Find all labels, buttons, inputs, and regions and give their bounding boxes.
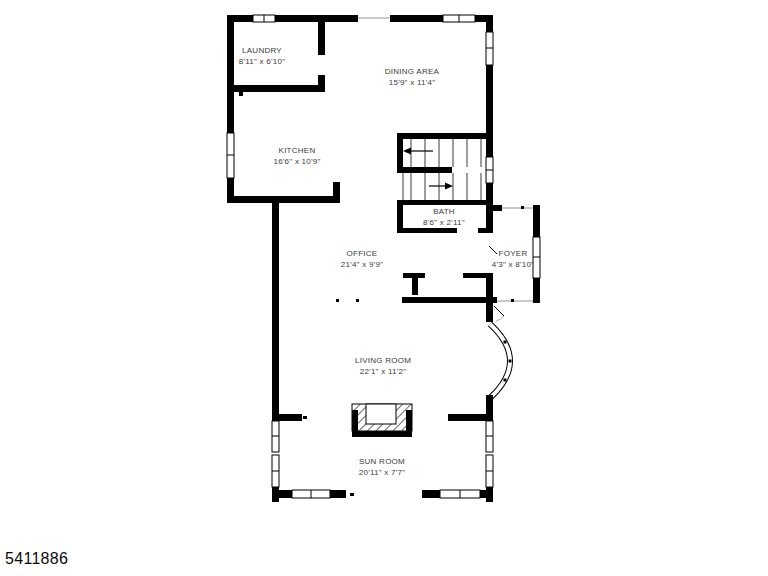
room-name: FOYER bbox=[492, 248, 534, 259]
room-dims: 4'3" x 8'10" bbox=[492, 259, 534, 270]
room-label-kitchen: KITCHEN 16'6" x 10'9" bbox=[273, 145, 320, 167]
room-label-living-room: LIVING ROOM 22'1" x 11'2" bbox=[355, 355, 411, 377]
room-label-office: OFFICE 21'4" x 9'9" bbox=[341, 248, 383, 270]
room-name: SUN ROOM bbox=[359, 456, 406, 467]
room-label-laundry: LAUNDRY 8'11" x 6'10" bbox=[239, 45, 286, 67]
room-dims: 22'1" x 11'2" bbox=[355, 366, 411, 377]
fireplace bbox=[352, 404, 412, 437]
floorplan-image: LAUNDRY 8'11" x 6'10" DINING AREA 15'9" … bbox=[0, 0, 768, 576]
room-label-foyer: FOYER 4'3" x 8'10" bbox=[492, 248, 534, 270]
room-label-sun-room: SUN ROOM 20'11" x 7'7" bbox=[359, 456, 406, 478]
room-name: DINING AREA bbox=[385, 66, 439, 77]
room-name: LIVING ROOM bbox=[355, 355, 411, 366]
room-dims: 15'9" x 11'4" bbox=[385, 77, 439, 88]
room-name: LAUNDRY bbox=[239, 45, 286, 56]
listing-number: 5411886 bbox=[5, 550, 68, 568]
room-dims: 21'4" x 9'9" bbox=[341, 259, 383, 270]
room-dims: 8'6" x 2'11" bbox=[423, 217, 465, 228]
room-name: KITCHEN bbox=[273, 145, 320, 156]
room-dims: 16'6" x 10'9" bbox=[273, 156, 320, 167]
room-label-dining-area: DINING AREA 15'9" x 11'4" bbox=[385, 66, 439, 88]
room-dims: 20'11" x 7'7" bbox=[359, 467, 406, 478]
room-name: BATH bbox=[423, 206, 465, 217]
firebox bbox=[366, 404, 396, 424]
room-name: OFFICE bbox=[341, 248, 383, 259]
room-label-bath: BATH 8'6" x 2'11" bbox=[423, 206, 465, 228]
room-dims: 8'11" x 6'10" bbox=[239, 56, 286, 67]
